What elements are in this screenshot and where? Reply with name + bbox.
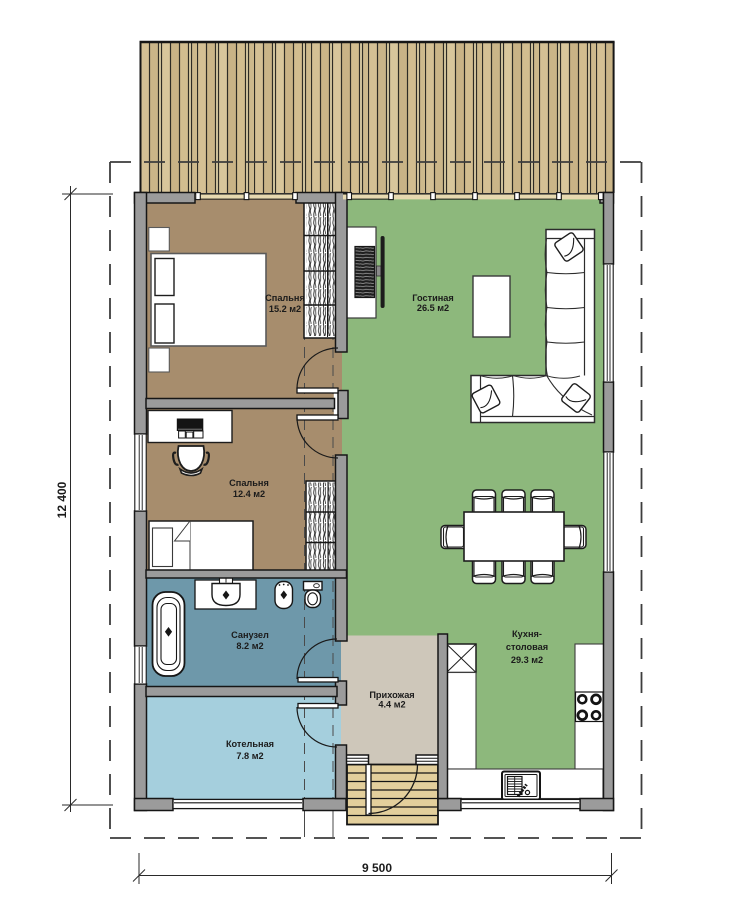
svg-text:Кухня-: Кухня-	[512, 629, 542, 639]
svg-text:9 500: 9 500	[362, 861, 392, 875]
svg-text:15.2 м2: 15.2 м2	[269, 304, 301, 314]
svg-text:26.5 м2: 26.5 м2	[417, 303, 449, 313]
svg-text:7.8 м2: 7.8 м2	[236, 751, 263, 761]
svg-text:4.4 м2: 4.4 м2	[378, 700, 405, 710]
svg-text:Санузел: Санузел	[231, 630, 269, 640]
svg-text:Гостиная: Гостиная	[412, 293, 454, 303]
svg-text:12 400: 12 400	[55, 481, 69, 518]
svg-text:Спальня: Спальня	[229, 478, 269, 488]
svg-text:12.4 м2: 12.4 м2	[233, 489, 265, 499]
svg-text:Спальня: Спальня	[265, 293, 305, 303]
svg-text:29.3 м2: 29.3 м2	[511, 655, 543, 665]
svg-text:столовая: столовая	[506, 642, 548, 652]
svg-text:8.2 м2: 8.2 м2	[236, 641, 263, 651]
svg-text:Прихожая: Прихожая	[369, 690, 414, 700]
svg-text:Котельная: Котельная	[226, 739, 274, 749]
